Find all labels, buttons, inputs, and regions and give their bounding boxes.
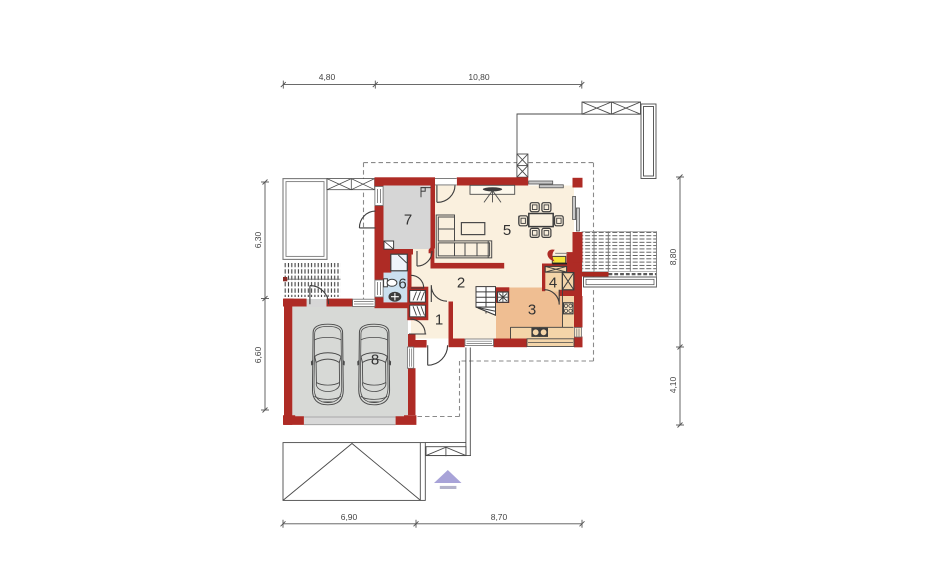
svg-text:3: 3 xyxy=(528,302,536,319)
svg-text:8,80: 8,80 xyxy=(668,248,678,265)
svg-text:4,10: 4,10 xyxy=(668,376,678,393)
svg-text:8,70: 8,70 xyxy=(491,512,508,522)
svg-text:5: 5 xyxy=(503,222,511,239)
svg-text:6: 6 xyxy=(398,276,406,293)
svg-text:8: 8 xyxy=(371,352,379,369)
svg-text:4: 4 xyxy=(549,275,557,292)
svg-text:6,90: 6,90 xyxy=(341,512,358,522)
svg-text:1: 1 xyxy=(435,312,443,329)
svg-text:10,80: 10,80 xyxy=(468,72,490,82)
svg-text:4,80: 4,80 xyxy=(319,72,336,82)
svg-text:7: 7 xyxy=(404,212,412,229)
svg-text:2: 2 xyxy=(457,275,465,292)
svg-text:6,30: 6,30 xyxy=(253,231,263,248)
svg-text:6,60: 6,60 xyxy=(253,346,263,363)
